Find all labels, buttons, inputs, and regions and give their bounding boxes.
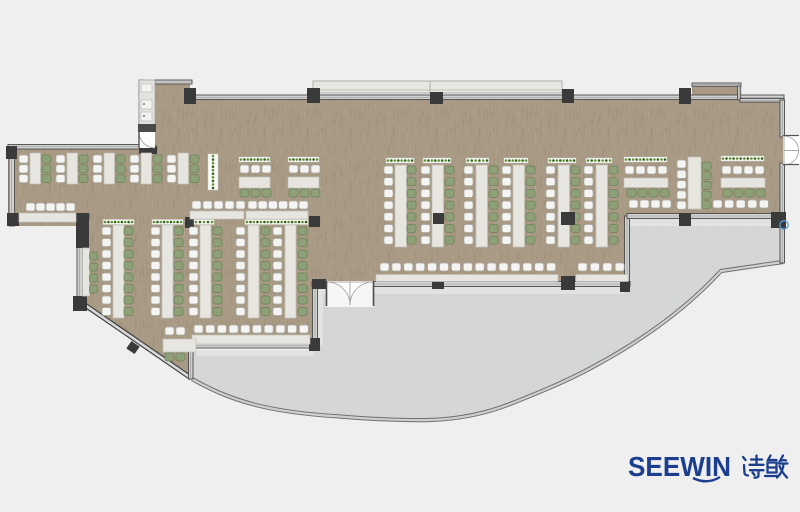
svg-text:SEEWIN: SEEWIN	[628, 451, 731, 482]
